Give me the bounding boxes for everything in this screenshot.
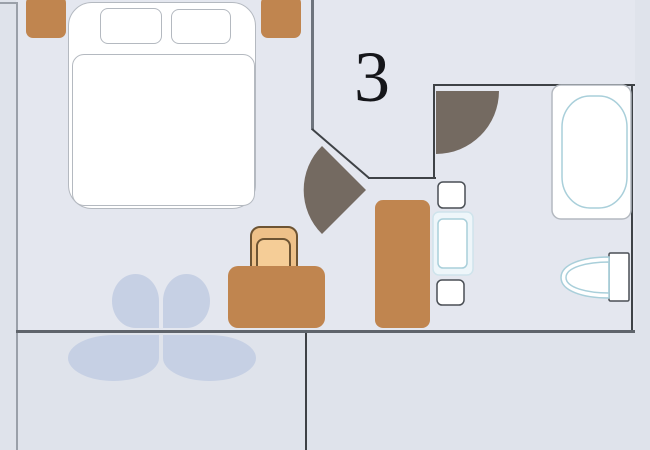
- floor-plan: 3: [0, 0, 650, 450]
- unit-number-label: 3: [352, 41, 392, 113]
- washbasin-bowl-icon: [438, 219, 467, 268]
- bathroom-door-swing-icon: [436, 91, 499, 154]
- bathroom-shelf-bottom-icon: [437, 280, 464, 305]
- room-door-swing-icon: [304, 146, 366, 234]
- toilet-tank-icon: [609, 253, 629, 301]
- toilet-bowl-icon: [561, 257, 609, 298]
- plan-vector-layer: [0, 0, 650, 450]
- bathroom-shelf-top-icon: [438, 182, 465, 208]
